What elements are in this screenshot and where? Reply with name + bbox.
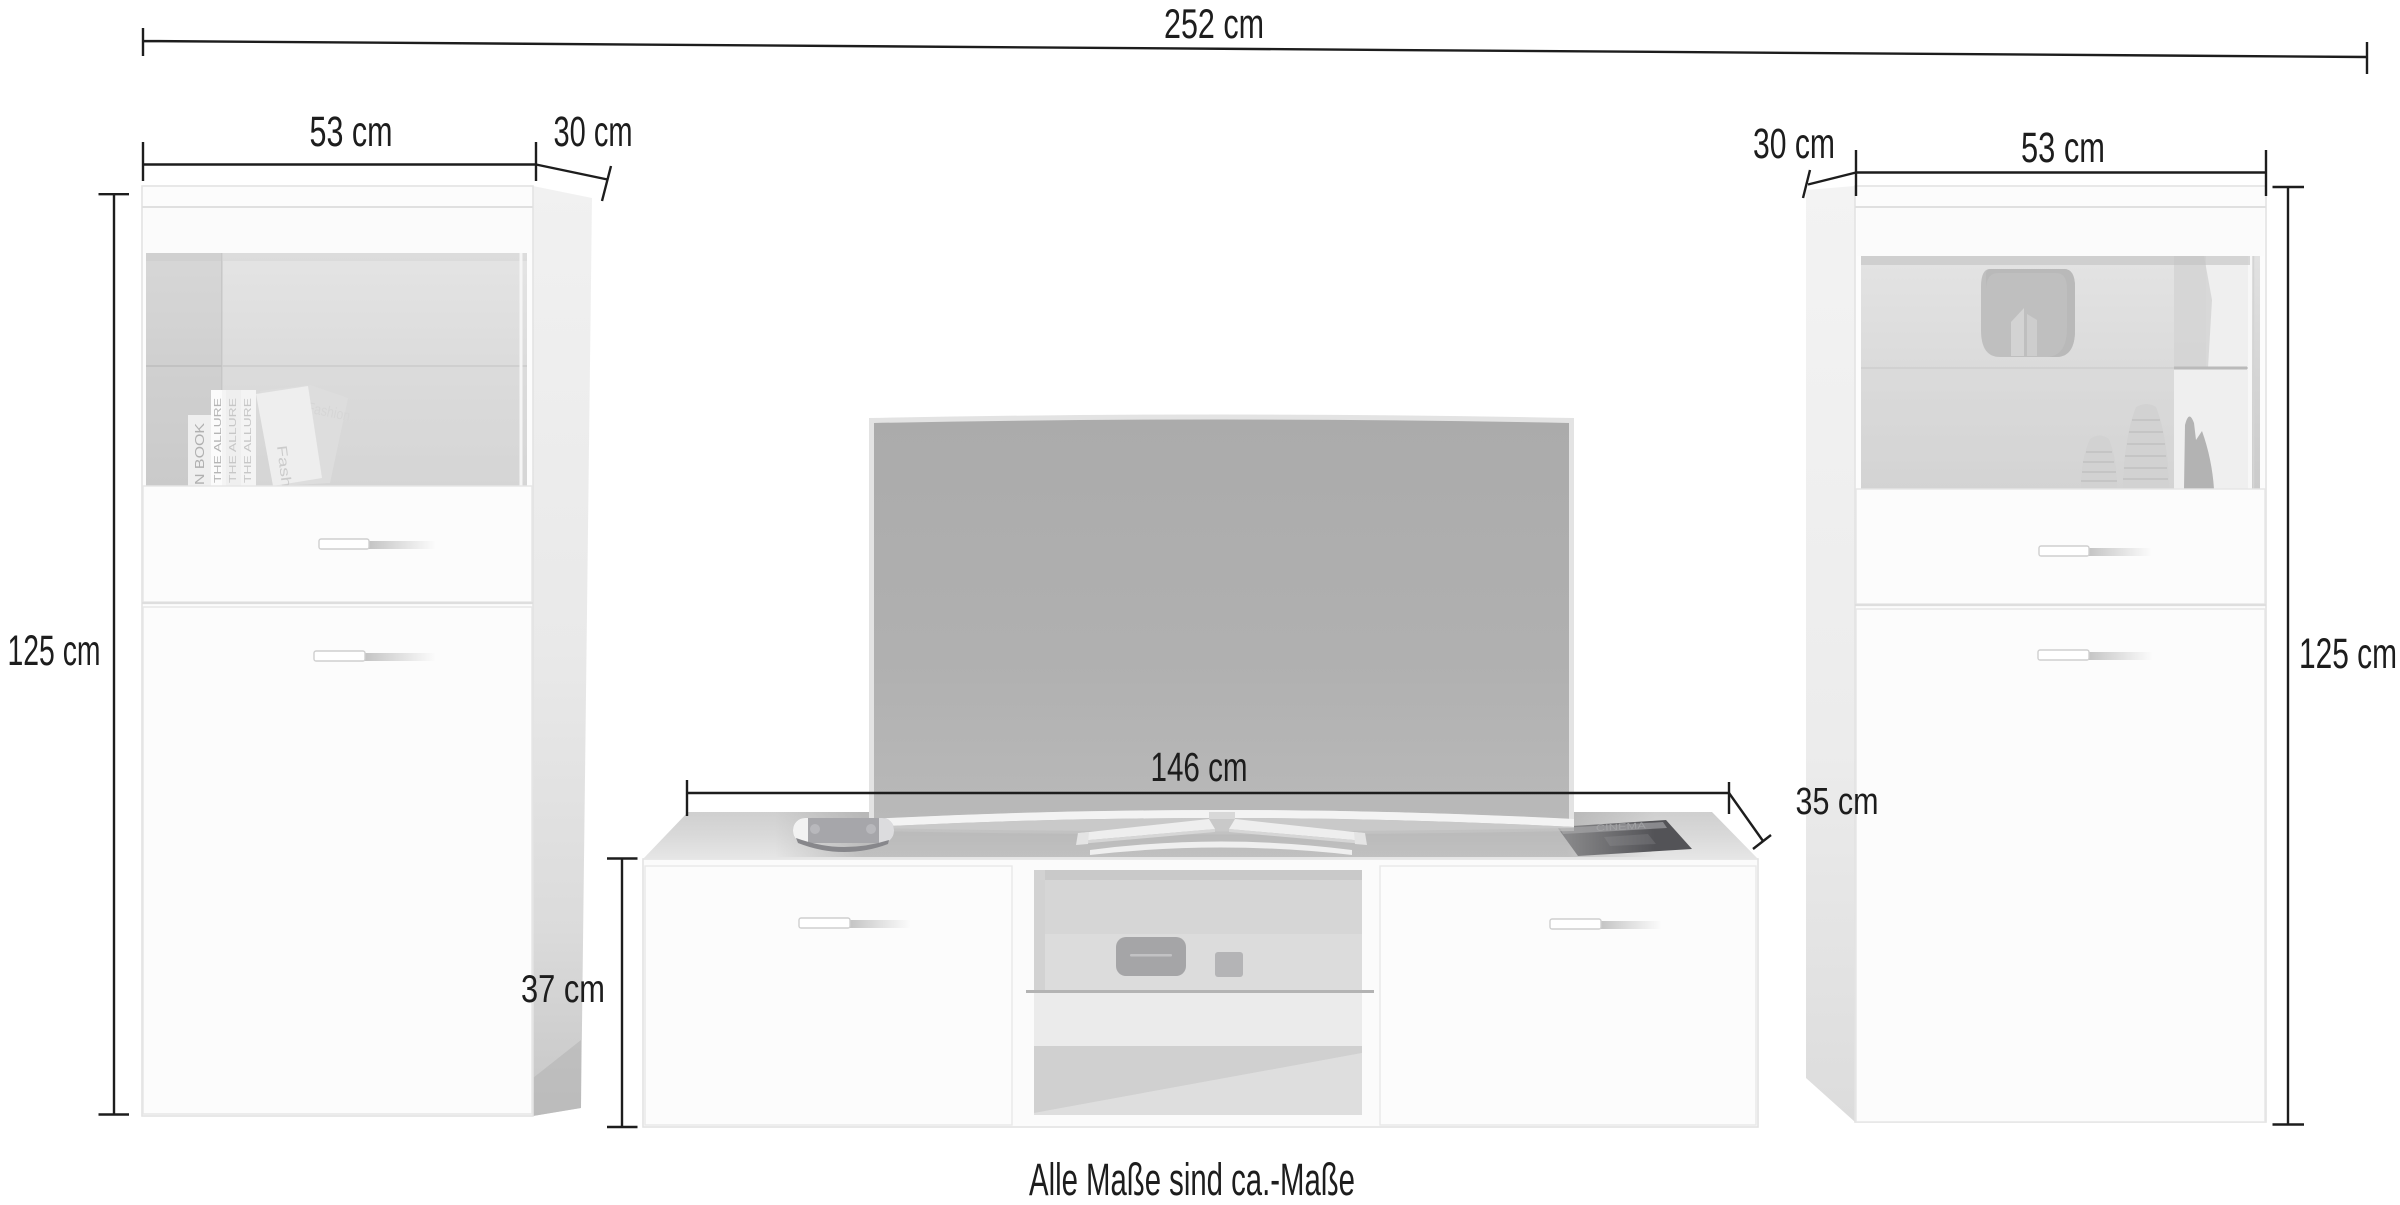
svg-text:N BOOK: N BOOK: [192, 423, 207, 485]
svg-text:125 cm: 125 cm: [8, 627, 101, 675]
svg-text:252 cm: 252 cm: [1164, 0, 1264, 47]
svg-text:146 cm: 146 cm: [1151, 744, 1248, 790]
svg-text:125 cm: 125 cm: [2299, 630, 2397, 678]
svg-text:53 cm: 53 cm: [2021, 124, 2105, 172]
svg-text:37 cm: 37 cm: [521, 968, 605, 1011]
svg-text:53 cm: 53 cm: [310, 108, 393, 156]
svg-text:Alle Maße sind ca.-Maße: Alle Maße sind ca.-Maße: [1029, 1154, 1355, 1205]
svg-text:30 cm: 30 cm: [1753, 120, 1835, 168]
svg-text:30 cm: 30 cm: [554, 108, 633, 156]
svg-text:35 cm: 35 cm: [1796, 781, 1879, 823]
